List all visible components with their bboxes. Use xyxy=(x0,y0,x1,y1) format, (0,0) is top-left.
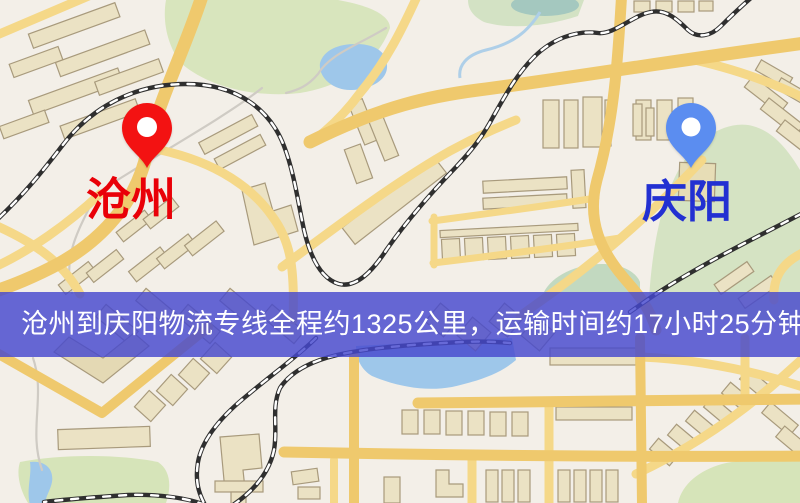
origin-label: 沧州 xyxy=(86,177,176,222)
map-pin-icon xyxy=(664,102,718,169)
route-info-banner: 沧州到庆阳物流专线全程约1325公里，运输时间约17小时25分钟. xyxy=(0,292,800,357)
map-background xyxy=(0,0,800,503)
destination-label: 庆阳 xyxy=(642,179,732,224)
origin-pin[interactable] xyxy=(120,102,174,169)
map[interactable]: 沧州 庆阳 沧州到庆阳物流专线全程约1325公里，运输时间约17小时25分钟. xyxy=(0,0,800,503)
map-pin-icon xyxy=(120,102,174,169)
destination-pin[interactable] xyxy=(664,102,718,169)
route-info-text: 沧州到庆阳物流专线全程约1325公里，运输时间约17小时25分钟. xyxy=(0,292,800,356)
